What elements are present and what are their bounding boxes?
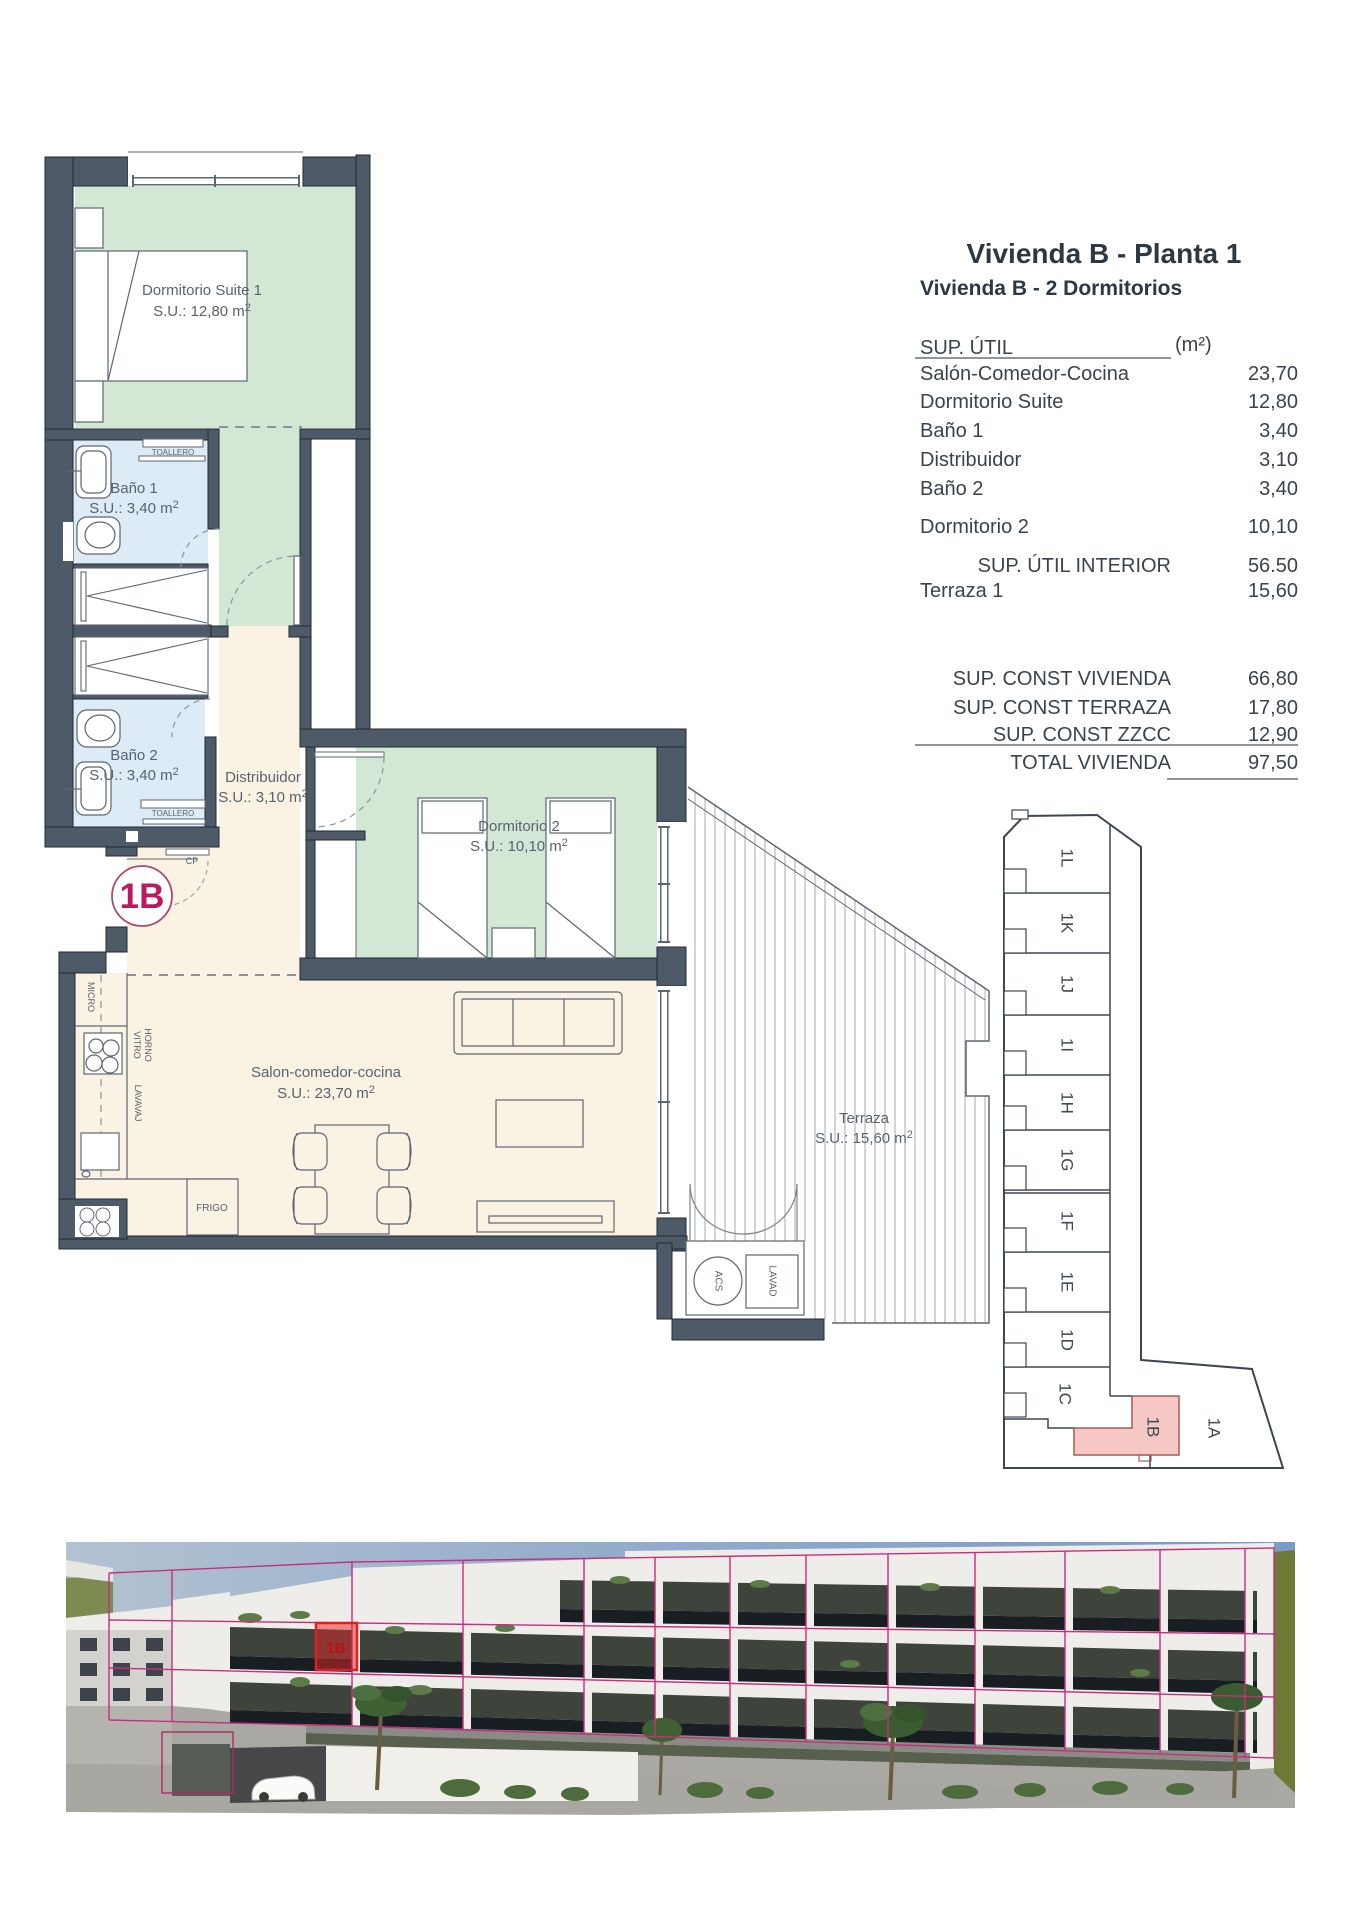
svg-text:1G: 1G bbox=[1058, 1149, 1077, 1172]
svg-text:FRIGO: FRIGO bbox=[196, 1203, 228, 1214]
svg-text:CP: CP bbox=[186, 856, 199, 866]
svg-text:VITRO: VITRO bbox=[132, 1031, 142, 1059]
svg-text:Baño 2: Baño 2 bbox=[920, 478, 983, 500]
svg-text:Dormitorio 2: Dormitorio 2 bbox=[920, 516, 1029, 538]
svg-text:1B: 1B bbox=[120, 877, 165, 916]
svg-text:Salon-comedor-cocina: Salon-comedor-cocina bbox=[251, 1064, 402, 1081]
svg-text:Distribuidor: Distribuidor bbox=[225, 769, 301, 786]
svg-text:17,80: 17,80 bbox=[1248, 697, 1298, 719]
svg-text:1K: 1K bbox=[1058, 913, 1077, 934]
svg-text:1H: 1H bbox=[1058, 1092, 1077, 1114]
svg-text:Dormitorio Suite: Dormitorio Suite bbox=[920, 391, 1063, 413]
svg-text:3,40: 3,40 bbox=[1259, 420, 1298, 442]
svg-text:LAVAD: LAVAD bbox=[766, 1265, 777, 1296]
svg-text:56.50: 56.50 bbox=[1248, 555, 1298, 577]
svg-text:S.U.: 12,80 m2: S.U.: 12,80 m2 bbox=[153, 302, 251, 320]
svg-text:Distribuidor: Distribuidor bbox=[920, 449, 1021, 471]
svg-text:1B: 1B bbox=[1144, 1417, 1163, 1438]
svg-text:(m²): (m²) bbox=[1175, 334, 1212, 356]
svg-text:Vivienda B - 2 Dormitorios: Vivienda B - 2 Dormitorios bbox=[920, 277, 1182, 300]
svg-text:1I: 1I bbox=[1058, 1038, 1077, 1052]
svg-text:Baño 2: Baño 2 bbox=[110, 747, 158, 764]
svg-text:1J: 1J bbox=[1058, 975, 1077, 993]
svg-text:12,90: 12,90 bbox=[1248, 724, 1298, 746]
svg-text:1D: 1D bbox=[1058, 1329, 1077, 1351]
svg-text:ACS: ACS bbox=[712, 1271, 723, 1292]
svg-text:TOALLERO: TOALLERO bbox=[152, 809, 195, 818]
svg-text:1F: 1F bbox=[1058, 1211, 1077, 1231]
svg-text:TOALLERO: TOALLERO bbox=[152, 448, 195, 457]
svg-text:SUP. ÚTIL INTERIOR: SUP. ÚTIL INTERIOR bbox=[978, 554, 1171, 577]
svg-text:10,10: 10,10 bbox=[1248, 516, 1298, 538]
svg-text:Dormitorio Suite 1: Dormitorio Suite 1 bbox=[142, 282, 262, 299]
svg-text:Baño 1: Baño 1 bbox=[110, 480, 158, 497]
svg-text:S.U.: 3,40 m2: S.U.: 3,40 m2 bbox=[89, 499, 179, 517]
svg-text:12,80: 12,80 bbox=[1248, 391, 1298, 413]
svg-text:Terraza: Terraza bbox=[839, 1110, 890, 1127]
svg-text:S.U.: 23,70 m2: S.U.: 23,70 m2 bbox=[277, 1084, 375, 1102]
svg-text:1E: 1E bbox=[1058, 1272, 1077, 1293]
svg-text:3,40: 3,40 bbox=[1259, 478, 1298, 500]
svg-text:S.U.: 10,10 m2: S.U.: 10,10 m2 bbox=[470, 837, 568, 855]
svg-text:97,50: 97,50 bbox=[1248, 752, 1298, 774]
svg-text:3,10: 3,10 bbox=[1259, 449, 1298, 471]
svg-text:66,80: 66,80 bbox=[1248, 668, 1298, 690]
svg-text:Vivienda B - Planta 1: Vivienda B - Planta 1 bbox=[967, 238, 1242, 269]
svg-text:1L: 1L bbox=[1058, 849, 1077, 868]
svg-text:1C: 1C bbox=[1056, 1383, 1075, 1405]
svg-text:Baño 1: Baño 1 bbox=[920, 420, 983, 442]
svg-text:S.U.: 3,10 m2: S.U.: 3,10 m2 bbox=[218, 788, 308, 806]
svg-text:SUP. ÚTIL: SUP. ÚTIL bbox=[920, 336, 1013, 359]
svg-text:HORNO: HORNO bbox=[143, 1028, 153, 1062]
svg-text:S.U.: 3,40 m2: S.U.: 3,40 m2 bbox=[89, 766, 179, 784]
svg-text:LAVAVAJ: LAVAVAJ bbox=[133, 1085, 143, 1122]
svg-text:23,70: 23,70 bbox=[1248, 363, 1298, 385]
svg-text:Dormitorio 2: Dormitorio 2 bbox=[478, 818, 560, 835]
svg-text:SUP. CONST VIVIENDA: SUP. CONST VIVIENDA bbox=[953, 668, 1172, 690]
svg-text:MICRO: MICRO bbox=[86, 982, 96, 1012]
svg-text:1A: 1A bbox=[1205, 1418, 1224, 1439]
svg-text:1B: 1B bbox=[326, 1640, 345, 1657]
svg-text:15,60: 15,60 bbox=[1248, 580, 1298, 602]
svg-text:SUP. CONST TERRAZA: SUP. CONST TERRAZA bbox=[953, 697, 1171, 719]
svg-text:SUP. CONST ZZCC: SUP. CONST ZZCC bbox=[993, 724, 1171, 746]
svg-text:TOTAL VIVIENDA: TOTAL VIVIENDA bbox=[1010, 752, 1171, 774]
svg-text:S.U.: 15,60 m2: S.U.: 15,60 m2 bbox=[815, 1129, 913, 1147]
svg-text:Salón-Comedor-Cocina: Salón-Comedor-Cocina bbox=[920, 363, 1130, 385]
svg-text:Terraza 1: Terraza 1 bbox=[920, 580, 1003, 602]
